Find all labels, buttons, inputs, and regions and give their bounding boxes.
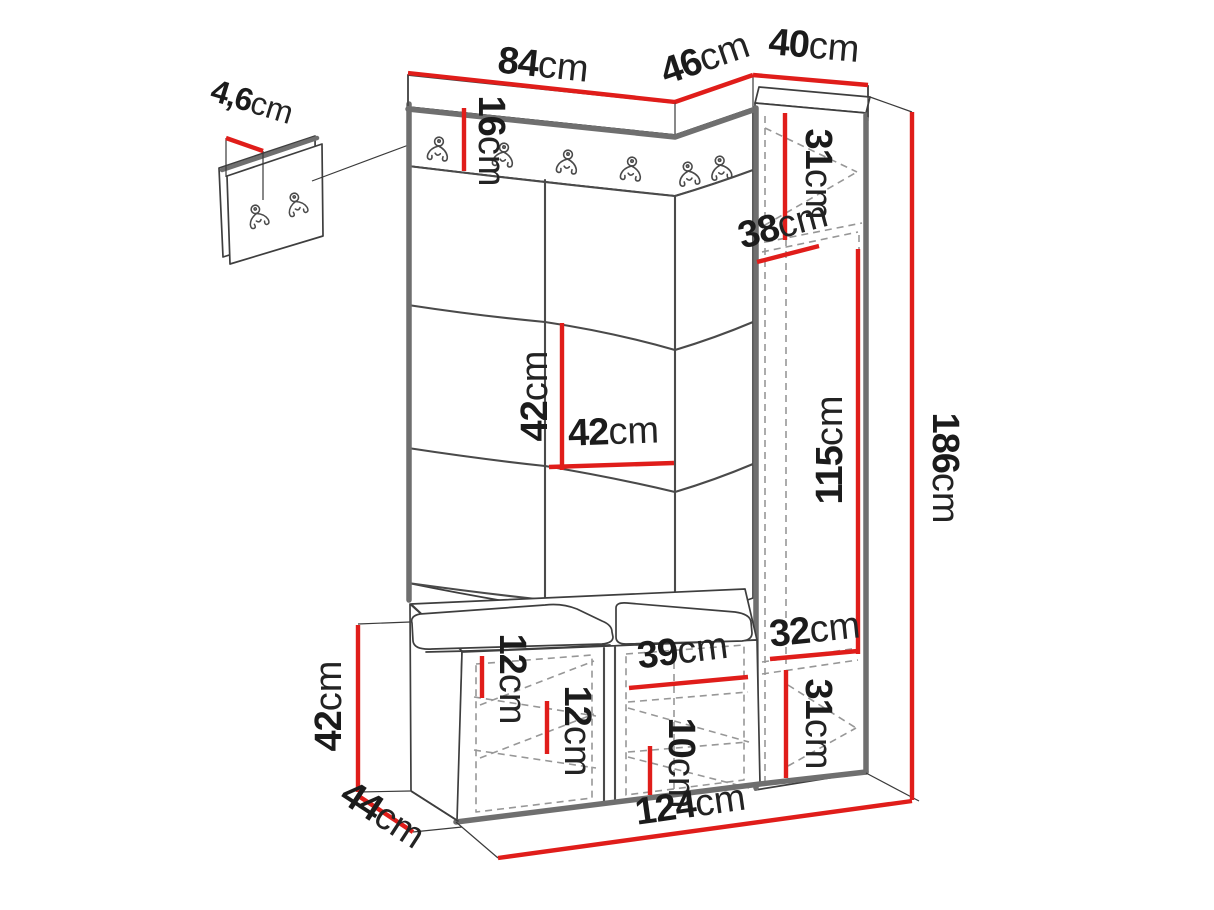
dim-label-bench-top-clearance: 12cm (491, 634, 533, 725)
dim-rail-height: 16cm (464, 96, 512, 187)
furniture-dimension-diagram: 84cm 46cm 40cm 4,6cm 16cm 31cm 38cm (0, 0, 1214, 910)
padded-panel-wall (408, 166, 753, 625)
dim-label-total-height: 186cm (924, 412, 966, 523)
dim-label-bench-shelf-clearance: 12cm (556, 686, 598, 777)
dim-label-panel-thickness: 4,6cm (207, 72, 298, 131)
dim-label-bench-height: 42cm (308, 661, 350, 752)
dim-top-right-width: 40cm (753, 21, 868, 85)
dim-cabinet-inner-width: 32cm (767, 604, 862, 659)
dim-label-cabinet-bottom-compartment: 31cm (797, 679, 839, 770)
dim-bench-height: 42cm (308, 625, 358, 792)
dim-label-tile-height: 42cm (514, 351, 556, 442)
dim-total-height: 186cm (912, 112, 966, 800)
small-wall-panel (219, 136, 414, 264)
dim-label-cabinet-door-height: 115cm (809, 396, 851, 505)
dim-label-rail-height: 16cm (470, 96, 512, 187)
dim-label-tile-width: 42cm (567, 409, 659, 454)
dim-panel-thickness: 4,6cm (207, 72, 298, 151)
panel-leader-line (312, 143, 414, 181)
dim-label-top-right-width: 40cm (767, 21, 861, 71)
